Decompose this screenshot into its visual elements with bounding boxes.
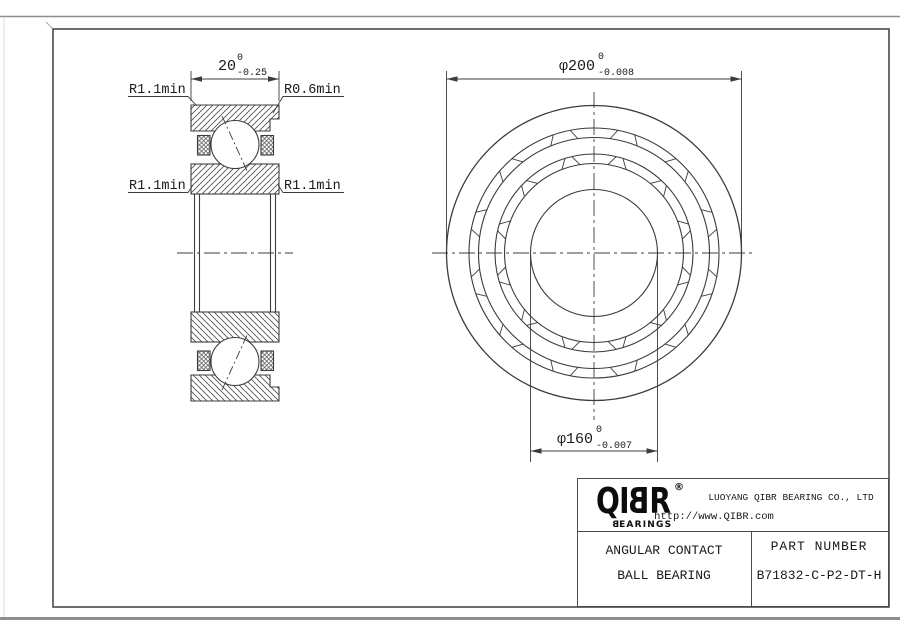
- part-number-value: B71832-C-P2-DT-H: [757, 568, 882, 583]
- product-name-line1: ANGULAR CONTACT: [605, 543, 722, 558]
- od-dim-upper-tol: 0: [598, 52, 604, 63]
- product-name-line2: BALL BEARING: [617, 568, 711, 583]
- ball-section: [211, 121, 259, 169]
- fillet-label-top-right: R0.6min: [284, 83, 341, 98]
- bearing-drawing-page: { "drawing": { "section_view": { "width_…: [0, 0, 900, 636]
- cage-section-right: [261, 136, 274, 156]
- title-block-vertical-divider: [751, 531, 752, 606]
- bore-dim-upper-tol: 0: [596, 425, 602, 436]
- fillet-label-top-left: R1.1min: [129, 83, 186, 98]
- part-number-label: PART NUMBER: [771, 539, 868, 554]
- company-website: http://www.QIBR.com: [654, 511, 774, 523]
- section-bottom-half: [191, 312, 279, 401]
- brand-logo-text: QI: [596, 481, 629, 522]
- width-dim-lower-tol: -0.25: [237, 68, 267, 79]
- width-dim-value: 20: [218, 58, 236, 75]
- bore-dim-lower-tol: -0.007: [596, 441, 632, 452]
- registered-trademark-icon: ®: [674, 482, 684, 493]
- section-view: [177, 105, 293, 401]
- fillet-label-mid-left: R1.1min: [129, 179, 186, 194]
- brand-logo-mirrored-b: B: [629, 484, 650, 520]
- company-name: LUOYANG QIBR BEARING CO., LTD: [708, 492, 873, 503]
- title-block: QIBR ® BEARINGS LUOYANG QIBR BEARING CO.…: [577, 478, 889, 607]
- od-dim-lower-tol: -0.008: [598, 68, 634, 79]
- front-view: [432, 92, 756, 420]
- width-dim-upper-tol: 0: [237, 53, 243, 64]
- cage-section-left: [198, 136, 211, 156]
- title-block-horizontal-divider: [578, 531, 888, 532]
- od-dim-value: φ200: [559, 58, 595, 75]
- bore-dim-value: φ160: [557, 431, 593, 448]
- fillet-label-mid-right: R1.1min: [284, 179, 341, 194]
- brand-subtext-mirrored-b: B: [611, 520, 619, 530]
- section-top-half: [191, 105, 279, 194]
